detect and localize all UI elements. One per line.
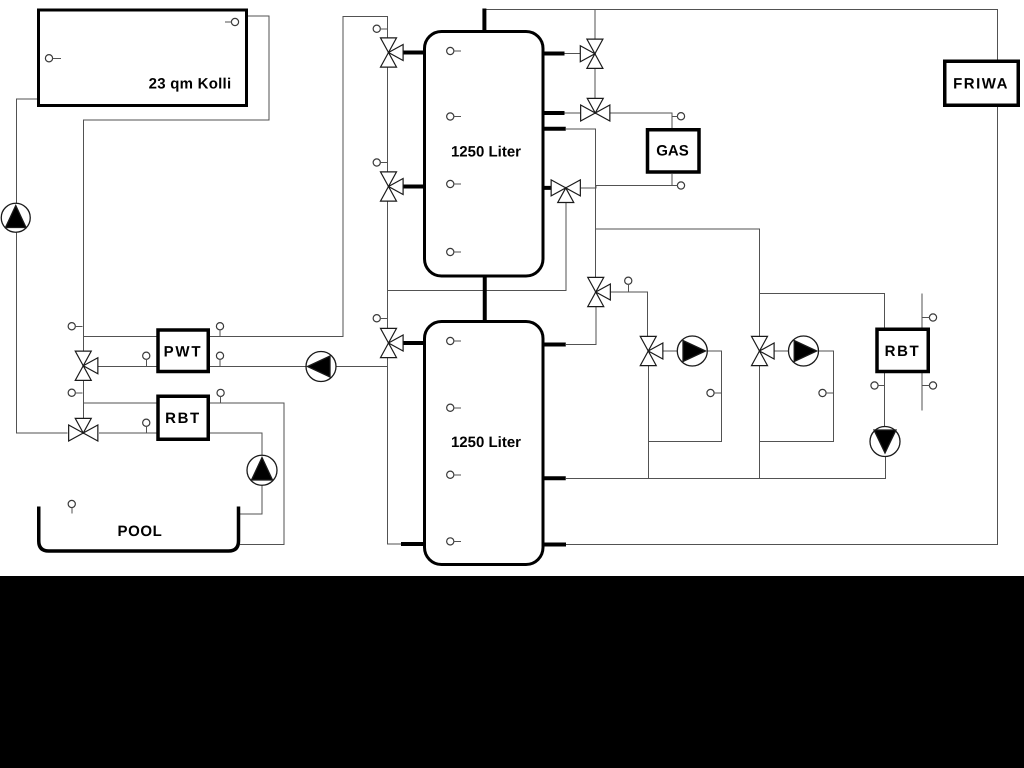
svg-text:1250 Liter: 1250 Liter [451,143,521,160]
svg-text:RBT: RBT [165,410,201,427]
svg-text:1250 Liter: 1250 Liter [451,434,521,451]
svg-text:POOL: POOL [118,523,163,540]
svg-text:PWT: PWT [164,344,203,361]
svg-text:RBT: RBT [885,343,921,360]
svg-text:FRIWA: FRIWA [953,76,1009,93]
svg-text:23 qm Kolli: 23 qm Kolli [149,75,232,92]
svg-text:GAS: GAS [656,143,689,160]
